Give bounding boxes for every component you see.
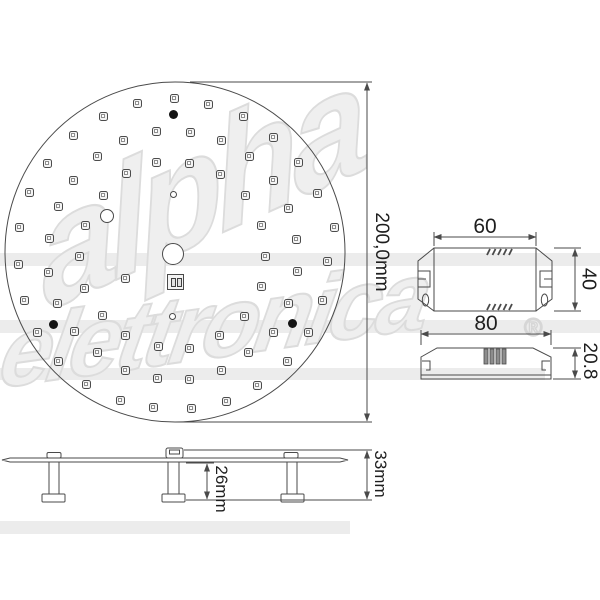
led-pad <box>283 357 292 366</box>
led-pad <box>185 375 194 384</box>
led-pad <box>185 344 194 353</box>
mounting-hole <box>162 243 184 265</box>
led-pad <box>14 260 23 269</box>
led-pad <box>313 189 322 198</box>
led-pad <box>261 252 270 261</box>
led-pad <box>269 176 278 185</box>
led-pad <box>294 158 303 167</box>
led-pad <box>292 235 301 244</box>
led-pad <box>185 159 194 168</box>
led-pad <box>204 100 213 109</box>
led-pad <box>152 158 161 167</box>
dim-label-overall-height: 33mm <box>370 450 390 497</box>
fiducial-dot <box>49 320 58 329</box>
led-pad <box>149 403 158 412</box>
led-pad <box>293 267 302 276</box>
led-pad <box>93 152 102 161</box>
fiducial-dot <box>288 319 297 328</box>
dim-label-driver-height: 20.8 <box>578 343 600 380</box>
dim-label-driver-width: 60 <box>473 215 496 239</box>
led-pad <box>217 366 226 375</box>
mounting-hole <box>169 313 176 320</box>
led-pad <box>186 128 195 137</box>
led-pad <box>44 268 53 277</box>
dim-label-driver-depth: 40 <box>577 268 600 290</box>
led-pad <box>269 328 278 337</box>
led-pad <box>121 331 130 340</box>
led-pad <box>119 136 128 145</box>
led-pad <box>284 299 293 308</box>
led-pad <box>239 112 248 121</box>
led-pad <box>187 404 196 413</box>
led-pad <box>222 397 231 406</box>
led-pad <box>133 99 142 108</box>
led-pad <box>99 191 108 200</box>
led-pad <box>54 202 63 211</box>
led-pad <box>330 223 339 232</box>
fiducial-dot <box>169 110 178 119</box>
led-pad <box>69 131 78 140</box>
led-pad <box>245 152 254 161</box>
power-connector <box>167 274 184 290</box>
led-pad <box>216 170 225 179</box>
led-pad <box>269 133 278 142</box>
led-pad <box>116 396 125 405</box>
led-pad <box>152 127 161 136</box>
led-pad <box>99 112 108 121</box>
led-pad <box>122 169 131 178</box>
led-pad <box>81 221 90 230</box>
led-pad <box>153 374 162 383</box>
led-pad <box>217 136 226 145</box>
led-pad <box>93 348 102 357</box>
led-pad <box>170 94 179 103</box>
led-pad <box>70 327 79 336</box>
dim-label-driver-length: 80 <box>474 312 497 336</box>
pcb-features-layer <box>0 0 600 600</box>
led-pad <box>69 176 78 185</box>
led-pad <box>318 296 327 305</box>
led-pad <box>53 299 62 308</box>
led-pad <box>121 366 130 375</box>
led-pad <box>257 282 266 291</box>
led-pad <box>75 252 84 261</box>
dim-label-diameter: 200,0mm <box>370 212 392 291</box>
led-pad <box>25 188 34 197</box>
led-pad <box>253 381 262 390</box>
led-pad <box>154 342 163 351</box>
led-pad <box>82 380 91 389</box>
mounting-hole <box>100 209 114 223</box>
led-pad <box>45 234 54 243</box>
dim-label-spacer-height: 26mm <box>211 465 231 512</box>
led-pad <box>20 296 29 305</box>
led-pad <box>43 159 52 168</box>
led-pad <box>15 223 24 232</box>
connector-pin <box>177 278 182 287</box>
led-pad <box>215 331 224 340</box>
led-pad <box>304 328 313 337</box>
led-pad <box>80 284 89 293</box>
technical-drawing-page: alpha elettronica ® <box>0 0 600 600</box>
led-pad <box>121 274 130 283</box>
mounting-hole <box>170 191 177 198</box>
led-pad <box>323 257 332 266</box>
led-pad <box>240 312 249 321</box>
led-pad <box>33 328 42 337</box>
led-pad <box>257 221 266 230</box>
led-pad <box>54 357 63 366</box>
led-pad <box>244 348 253 357</box>
led-pad <box>98 311 107 320</box>
led-pad <box>241 191 250 200</box>
connector-pin <box>171 278 176 287</box>
led-pad <box>284 204 293 213</box>
